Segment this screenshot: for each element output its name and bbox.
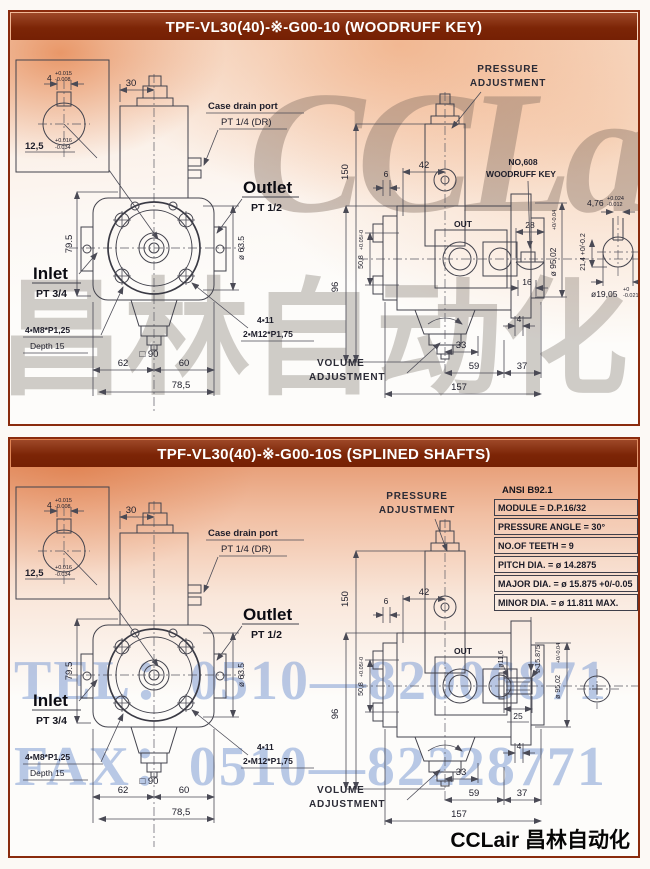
dim-59: 59: [469, 788, 480, 799]
spline-spec-row-minor-dia: MINOR DIA. = ø 11.811 MAX.: [494, 594, 638, 611]
splined-shaft-end-view: [577, 669, 619, 709]
outlet-port-label: PT 1/2: [251, 202, 282, 214]
dim-95-02-tol: +0/-0.04: [556, 643, 562, 663]
mounting-bolts-label: 4▪M8*P1,25: [25, 325, 70, 335]
dim-95-02-tol: +0/-0.04: [552, 210, 558, 230]
dim-19-05-tol-minus: -0.021: [623, 293, 639, 299]
inset-width-dim: 4: [47, 500, 52, 510]
pressure-adjustment-label-2: ADJUSTMENT: [379, 505, 455, 516]
pressure-adjustment-label-2: ADJUSTMENT: [470, 78, 546, 89]
dim-157: 157: [451, 809, 467, 820]
dim-78-5: 78,5: [172, 807, 191, 818]
dim-37: 37: [517, 361, 528, 372]
dim-4: 4: [517, 314, 522, 324]
case-drain-label: Case drain port: [208, 101, 279, 112]
dim-150: 150: [340, 591, 351, 607]
dim-4: 4: [517, 741, 522, 751]
panel2-title: TPF-VL30(40)-※-G00-10S (SPLINED SHAFTS): [157, 445, 490, 463]
spline-spec-header: ANSI B92.1: [502, 485, 638, 496]
dim-62: 62: [118, 358, 129, 369]
outlet-port-label: PT 1/2: [251, 629, 282, 641]
front-view: 30 62 60 □ 90 7: [23, 501, 314, 847]
case-drain-port-label: PT 1/4 (DR): [221, 117, 272, 128]
inset-depth-dim: 12,5: [25, 141, 44, 152]
side-view: OUT 28 16 ø 95,02 +0/-0.04 50,8: [309, 64, 639, 398]
inset-width-dim: 4: [47, 73, 52, 83]
dim-60: 60: [179, 785, 190, 796]
dim-33: 33: [456, 340, 467, 351]
woodruff-key-note-1: NO,608: [508, 157, 538, 167]
spline-spec-row-pitch-dia: PITCH DIA. = ø 14.2875: [494, 556, 638, 573]
mounting-holes-label: 4▪11: [257, 742, 274, 752]
out-port-label: OUT: [454, 219, 473, 229]
dim-60: 60: [179, 358, 190, 369]
dim-33: 33: [456, 767, 467, 778]
spline-spec-row-pressure-angle: PRESSURE ANGLE = 30°: [494, 518, 638, 535]
inset-depth-tol-plus: +0.016: [55, 565, 72, 571]
dim-63-5: ø 63.5: [236, 663, 246, 687]
stud-holes-label: 2▪M12*P1,75: [243, 756, 293, 766]
dim-50-8-tol: +0.05/-0: [359, 657, 365, 677]
volume-adjustment-label-1: VOLUME: [317, 358, 365, 369]
dim-96: 96: [330, 282, 341, 293]
dim-95-02: ø 95,02: [555, 675, 562, 699]
dim-4-76: 4,76: [587, 198, 604, 208]
case-drain-port-label: PT 1/4 (DR): [221, 544, 272, 555]
out-port-label: OUT: [454, 646, 473, 656]
dim-19-05: ø19,05: [591, 289, 618, 299]
mounting-bolts-label: 4▪M8*P1,25: [25, 752, 70, 762]
panel1-title-bar: TPF-VL30(40)-※-G00-10 (WOODRUFF KEY): [11, 13, 637, 40]
shaft-end-view: 4,76 +0.024 -0.012 21,4 +0/-0.2 ø19,05 +…: [580, 196, 639, 299]
pressure-adjustment-label-1: PRESSURE: [477, 64, 538, 75]
mounting-holes-label: 4▪11: [257, 315, 274, 325]
keyway-inset-view: 4 +0.015 -0.008 12,5 +0.016 -0.034: [16, 487, 158, 666]
dim-15-875: ø 15.875: [535, 645, 542, 673]
spline-spec-table: ANSI B92.1 MODULE = D.P.16/32 PRESSURE A…: [494, 485, 638, 613]
dim-95-02: ø 95,02: [548, 247, 558, 276]
dim-11-6: ø11,6: [498, 650, 505, 667]
bolt-depth-label: Depth 15: [30, 341, 65, 351]
inlet-label: Inlet: [33, 691, 68, 710]
bolt-depth-label: Depth 15: [30, 768, 65, 778]
panel2-title-bar: TPF-VL30(40)-※-G00-10S (SPLINED SHAFTS): [11, 440, 637, 467]
dim-28: 28: [525, 220, 535, 230]
case-drain-label: Case drain port: [208, 528, 279, 539]
dim-96: 96: [330, 709, 341, 720]
volume-adjustment-label-2: ADJUSTMENT: [309, 799, 385, 810]
dim-50-8-tol: +0.05/-0: [359, 230, 365, 250]
dim-6: 6: [384, 596, 389, 606]
spline-shaft-detail: ø11,6 ø 15.875 ø 95,02 +0/-0.04 25: [498, 643, 571, 727]
panel-woodruff-key: CCLair 昌林自动化 TPF-VL30(40)-※-G00-10 (WOOD…: [8, 10, 640, 426]
dim-50-8: 50,8: [358, 255, 365, 269]
dim-4-76-tol-minus: -0.012: [607, 202, 623, 208]
dim-37: 37: [517, 788, 528, 799]
outlet-label: Outlet: [243, 605, 292, 624]
pressure-adjustment-label-1: PRESSURE: [386, 491, 447, 502]
brand-footer: CCLair 昌林自动化: [450, 824, 630, 854]
dim-79-5: 79.5: [64, 235, 75, 254]
dim-30: 30: [126, 505, 137, 516]
spline-spec-row-module: MODULE = D.P.16/32: [494, 499, 638, 516]
inset-depth-tol-minus: -0.034: [55, 572, 71, 578]
dim-157: 157: [451, 382, 467, 393]
dim-square-90: □ 90: [140, 776, 159, 787]
inlet-port-label: PT 3/4: [36, 715, 67, 727]
volume-adjustment-label-1: VOLUME: [317, 785, 365, 796]
dim-16: 16: [522, 277, 532, 287]
dim-63-5: ø 63.5: [236, 236, 246, 260]
dim-42: 42: [419, 160, 430, 171]
dim-59: 59: [469, 361, 480, 372]
inlet-label: Inlet: [33, 264, 68, 283]
dim-6: 6: [384, 169, 389, 179]
inlet-port-label: PT 3/4: [36, 288, 67, 300]
dim-30: 30: [126, 78, 137, 89]
dim-62: 62: [118, 785, 129, 796]
inset-depth-tol-plus: +0.016: [55, 138, 72, 144]
dim-square-90: □ 90: [140, 349, 159, 360]
dim-42: 42: [419, 587, 430, 598]
inset-width-tol-minus: -0.008: [55, 77, 71, 83]
woodruff-key-note-2: WOODRUFF KEY: [486, 169, 556, 179]
inset-width-tol-minus: -0.008: [55, 504, 71, 510]
panel1-title: TPF-VL30(40)-※-G00-10 (WOODRUFF KEY): [166, 18, 483, 36]
dim-78-5: 78,5: [172, 380, 191, 391]
dim-50-8: 50,8: [358, 682, 365, 696]
inset-depth-tol-minus: -0.034: [55, 145, 71, 151]
dim-150: 150: [340, 164, 351, 180]
front-view: 30 62 60 □ 90 7: [23, 74, 314, 412]
panel-splined-shafts: TEL：0510—82006871 FAX：0510—82228771 TPF-…: [8, 437, 640, 858]
dim-25: 25: [513, 711, 523, 721]
outlet-label: Outlet: [243, 178, 292, 197]
stud-holes-label: 2▪M12*P1,75: [243, 329, 293, 339]
dim-21-4: 21,4 +0/-0.2: [580, 233, 587, 271]
panel1-drawing: 4 +0.015 -0.008 12,5 +0.016 -0.034 30: [11, 40, 639, 423]
volume-adjustment-label-2: ADJUSTMENT: [309, 372, 385, 383]
keyway-inset-view: 4 +0.015 -0.008 12,5 +0.016 -0.034: [16, 60, 158, 239]
spline-spec-row-teeth: NO.OF TEETH = 9: [494, 537, 638, 554]
spline-spec-row-major-dia: MAJOR DIA. = ø 15.875 +0/-0.05: [494, 575, 638, 592]
inset-depth-dim: 12,5: [25, 568, 44, 579]
dim-79-5: 79.5: [64, 662, 75, 681]
